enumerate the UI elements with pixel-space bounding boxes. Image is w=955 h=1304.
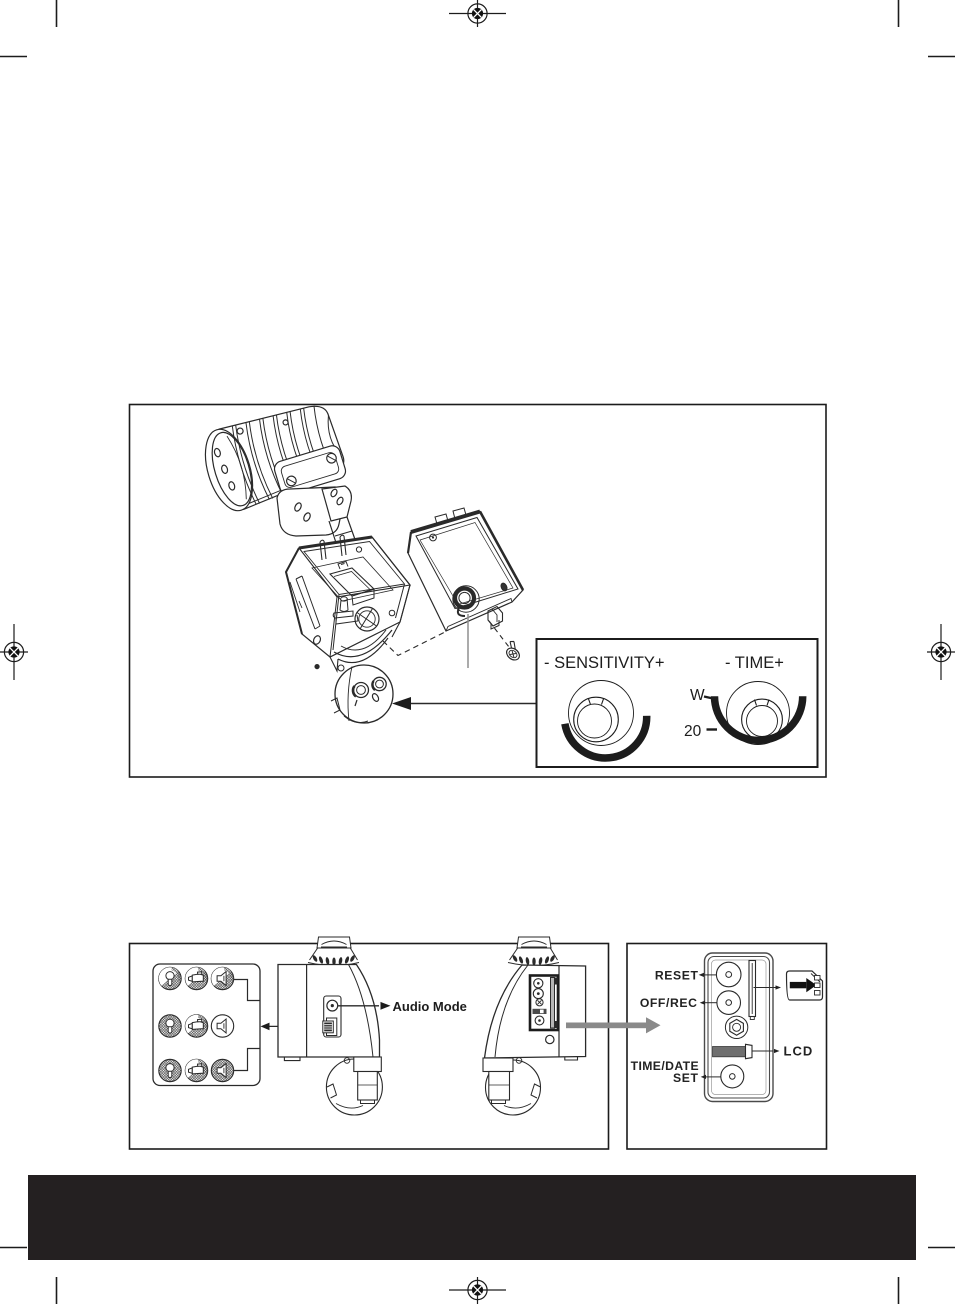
svg-text:W: W xyxy=(690,687,705,704)
svg-text:- SENSITIVITY+: - SENSITIVITY+ xyxy=(544,654,665,672)
svg-text:OFF/REC: OFF/REC xyxy=(640,996,698,1010)
svg-text:- TIME+: - TIME+ xyxy=(725,654,784,672)
svg-text:LCD: LCD xyxy=(784,1043,814,1058)
svg-text:Audio Mode: Audio Mode xyxy=(393,999,467,1014)
svg-text:20: 20 xyxy=(684,723,702,740)
svg-text:RESET: RESET xyxy=(655,968,699,982)
svg-text:SET: SET xyxy=(673,1071,699,1085)
